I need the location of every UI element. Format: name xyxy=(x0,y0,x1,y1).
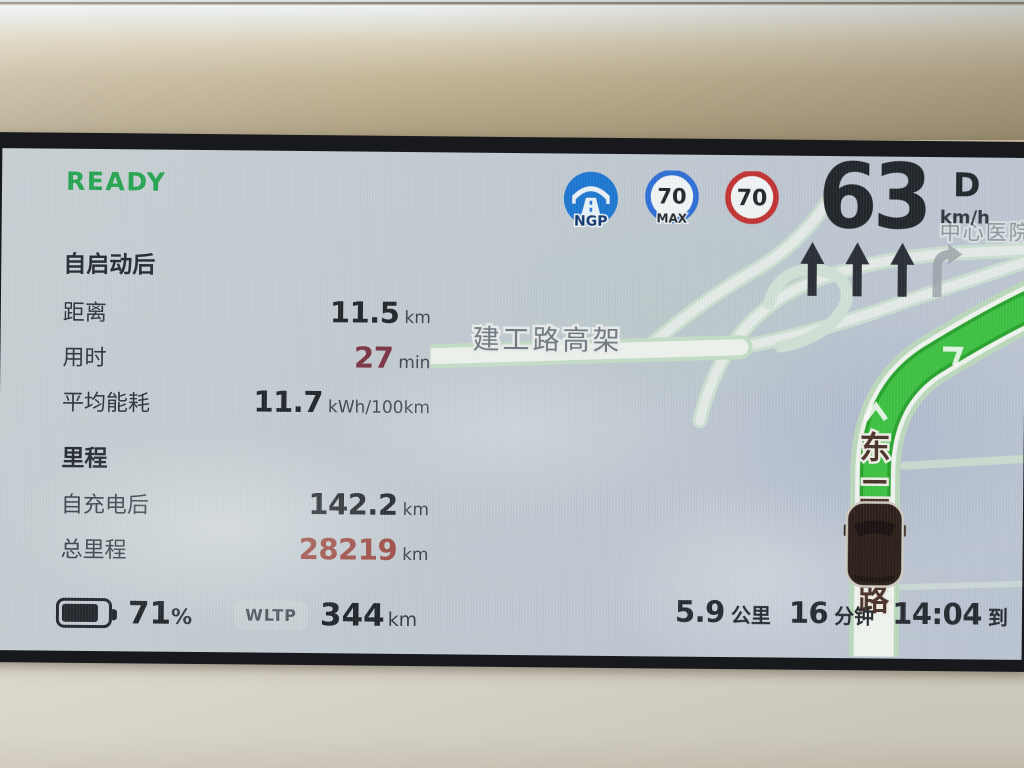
trip-row-label: 距离 xyxy=(63,295,107,327)
trip-row-label: 平均能耗 xyxy=(62,385,150,418)
road-label-elevated: 建工路高架 xyxy=(472,325,622,357)
max-speed-limit-icon: 70 MAX xyxy=(644,170,701,233)
svg-text:东: 东 xyxy=(859,430,890,466)
mileage-section-title: 里程 xyxy=(61,439,107,473)
mileage-row-odometer: 总里程 28219km xyxy=(60,530,428,568)
mileage-row-since-charge: 自充电后 142.2km xyxy=(61,485,429,523)
battery-cap xyxy=(112,609,117,620)
gear-indicator: D xyxy=(953,165,981,204)
lane-straight-arrow-icon xyxy=(890,243,915,297)
arrival-time: 14:04 xyxy=(892,597,982,632)
trip-row-duration: 用时 27min xyxy=(62,338,430,376)
trip-row-unit: min xyxy=(398,353,430,373)
trip-row-unit: km xyxy=(404,308,431,328)
mileage-row-unit: km xyxy=(402,500,429,520)
energy-bar: 71% WLTP 344km xyxy=(56,595,418,634)
svg-text:NGP: NGP xyxy=(574,214,608,230)
battery-icon xyxy=(56,598,112,629)
remaining-distance-unit: 公里 xyxy=(731,599,771,628)
remaining-time: 16 xyxy=(789,596,829,630)
trip-row-value: 27min xyxy=(354,340,431,375)
trip-row-value: 11.7kWh/100km xyxy=(253,385,430,421)
speed-limit-sign-icon: 70 xyxy=(724,171,781,234)
dashboard-cowl-top xyxy=(0,0,1024,140)
lane-guidance xyxy=(794,238,985,302)
remaining-time-unit: 分钟 xyxy=(834,600,874,629)
arrival-suffix: 到 xyxy=(988,602,1008,631)
mileage-row-label: 总里程 xyxy=(60,532,126,565)
trip-row-consumption: 平均能耗 11.7kWh/100km xyxy=(62,383,430,421)
adas-badges: NGP 70 MAX 70 xyxy=(562,169,781,233)
range-unit: km xyxy=(388,609,418,631)
ready-indicator: READY xyxy=(66,167,166,197)
car-marker-icon xyxy=(843,502,906,587)
route-summary-bar: 5.9公里 16分钟 14:04到 xyxy=(675,595,1008,632)
lane-straight-arrow-icon xyxy=(845,242,870,296)
trip-row-unit: kWh/100km xyxy=(328,397,430,418)
svg-text:70: 70 xyxy=(657,184,686,208)
lane-right-turn-arrow-icon xyxy=(937,244,963,297)
mileage-row-unit: km xyxy=(402,545,429,565)
trip-row-label: 用时 xyxy=(62,340,106,372)
trip-row-value: 11.5km xyxy=(330,295,431,330)
mileage-row-value: 142.2km xyxy=(308,487,429,522)
svg-text:70: 70 xyxy=(737,186,768,211)
dashboard-cowl-bottom xyxy=(0,656,1024,768)
mileage-row-value: 28219km xyxy=(299,532,429,567)
battery-fill xyxy=(62,604,98,622)
wltp-badge: WLTP xyxy=(234,600,308,630)
remaining-distance: 5.9 xyxy=(675,595,725,629)
trip-section-title: 自启动后 xyxy=(63,245,155,280)
lane-straight-arrow-icon xyxy=(800,242,825,296)
battery-percent: 71% xyxy=(128,595,193,632)
range-value: 344km xyxy=(320,597,418,634)
cluster-screen: 建工路高架 中心医院 东 二 路 READY 自启动后 距离 11.5km xyxy=(0,148,1024,660)
svg-text:MAX: MAX xyxy=(656,211,687,225)
mileage-row-label: 自充电后 xyxy=(61,487,149,520)
trip-row-distance: 距离 11.5km xyxy=(63,293,431,331)
speed-unit: km/h xyxy=(940,207,990,228)
ngp-icon: NGP xyxy=(562,169,621,232)
cluster-bezel: 建工路高架 中心医院 东 二 路 READY 自启动后 距离 11.5km xyxy=(0,132,1024,672)
speed-value: 63 xyxy=(801,148,945,250)
